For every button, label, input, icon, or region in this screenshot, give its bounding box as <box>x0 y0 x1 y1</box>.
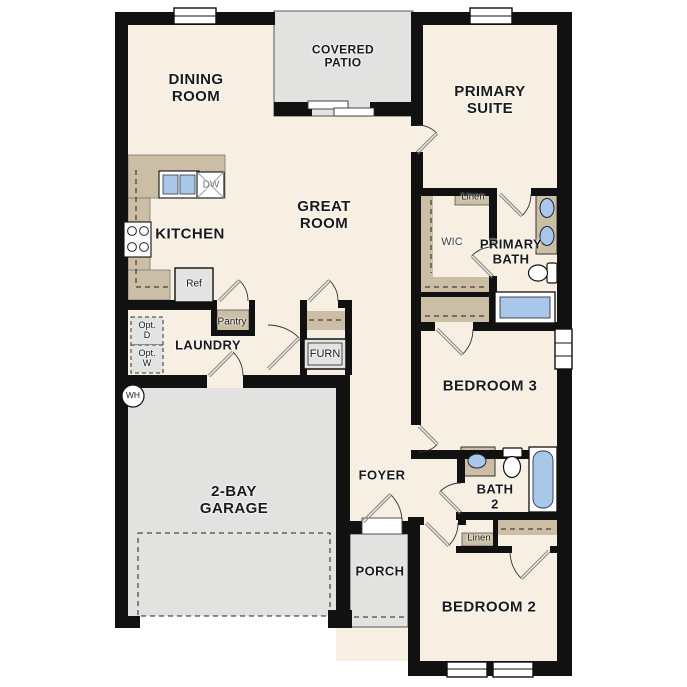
porch-floor <box>350 534 408 627</box>
wall <box>456 546 512 553</box>
kitchen-sink-basin <box>180 175 195 194</box>
label-furnace: FURN <box>310 348 341 360</box>
window-bedroom3 <box>555 329 572 369</box>
bath2-sink <box>468 454 486 468</box>
room-label-dining: DINING ROOM <box>169 72 224 106</box>
room-label-great-room: GREAT ROOM <box>297 199 350 233</box>
kitchen-counter-bottom <box>128 270 170 300</box>
window-bedroom2-right <box>493 662 533 677</box>
wall <box>243 375 350 388</box>
label-water-heater: WH <box>126 391 140 401</box>
bath2-toilet-tank <box>503 448 522 457</box>
room-label-bedroom3: BEDROOM 3 <box>443 379 537 396</box>
wall <box>115 12 128 628</box>
label-opt-washer: Opt. W <box>138 348 155 368</box>
wall <box>411 104 423 126</box>
wall <box>531 188 557 196</box>
wall <box>456 512 572 520</box>
wall <box>550 546 572 553</box>
stove-burner <box>128 227 137 236</box>
stove-burner <box>140 227 149 236</box>
label-pantry: Pantry <box>218 316 247 327</box>
floor-plan-svg <box>0 0 687 687</box>
bedroom2-closet-shelf <box>497 520 557 535</box>
wall <box>411 292 497 297</box>
label-linen-hall: Linen <box>467 534 490 545</box>
wall <box>370 102 413 116</box>
room-label-porch: PORCH <box>356 565 405 580</box>
label-dishwasher: DW <box>203 179 220 190</box>
primary-tub-basin <box>500 297 550 318</box>
wall <box>489 276 497 294</box>
room-label-foyer: FOYER <box>359 469 406 484</box>
patio-sliding-door-panel <box>334 108 374 116</box>
room-label-covered-patio: COVERED PATIO <box>312 44 374 71</box>
stove-burner <box>140 243 149 252</box>
wall <box>336 378 350 628</box>
primary-toilet-bowl <box>529 265 548 281</box>
room-label-bedroom2: BEDROOM 2 <box>442 600 536 617</box>
label-refrigerator: Ref <box>186 278 202 289</box>
wall <box>408 517 420 661</box>
stove-burner <box>128 243 137 252</box>
room-label-bath2: BATH 2 <box>477 482 514 511</box>
wall <box>411 188 421 425</box>
bath2-toilet-bowl <box>504 457 521 478</box>
wall <box>408 661 572 676</box>
room-label-laundry: LAUNDRY <box>175 339 241 354</box>
wall <box>338 300 345 308</box>
wall <box>411 152 423 188</box>
room-label-garage: 2-BAY GARAGE <box>200 484 268 518</box>
primary-toilet-tank <box>547 263 557 283</box>
room-label-wic: WIC <box>441 236 462 248</box>
room-label-primary-suite: PRIMARY SUITE <box>454 84 525 118</box>
label-linen-primary: Linen <box>461 193 484 204</box>
front-door-slab <box>362 518 402 534</box>
bedroom3-closet-shelf <box>421 297 489 322</box>
wall <box>115 616 140 628</box>
primary-sink <box>540 199 554 218</box>
label-opt-dryer: Opt. D <box>138 320 155 340</box>
wall <box>457 452 465 483</box>
room-label-kitchen: KITCHEN <box>155 227 224 244</box>
room-label-primary-bath: PRIMARY BATH <box>480 237 542 266</box>
bath2-tub-basin <box>533 451 553 508</box>
window-bedroom2-left <box>447 662 487 677</box>
wall <box>211 330 255 336</box>
floor-plan: DINING ROOM COVERED PATIO PRIMARY SUITE … <box>0 0 687 687</box>
wall <box>274 102 312 116</box>
wic-shelf-bottom <box>421 277 489 293</box>
kitchen-sink-basin <box>163 175 178 194</box>
wall <box>493 520 498 546</box>
wall <box>411 25 423 104</box>
